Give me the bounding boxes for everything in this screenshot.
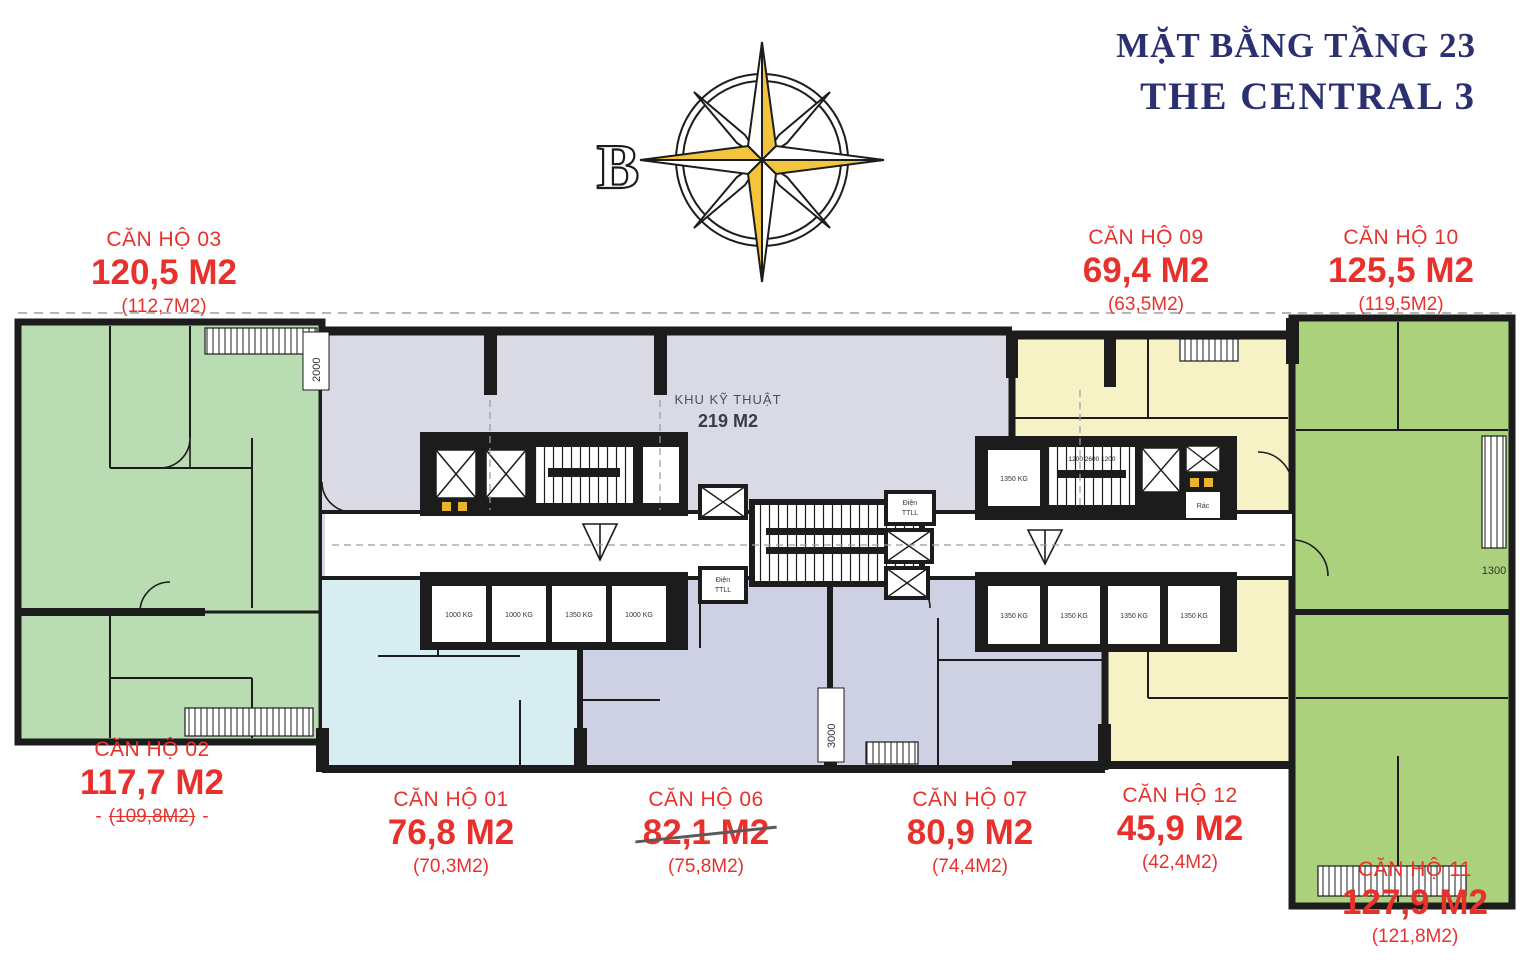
apartment-label-07: CĂN HỘ 07 80,9 M2 (74,4M2) — [864, 788, 1076, 878]
apartment-label-01: CĂN HỘ 01 76,8 M2 (70,3M2) — [345, 788, 557, 878]
stair-dimension: 1200 2600 1200 — [1069, 456, 1116, 463]
apartment-label-03: CĂN HỘ 03 120,5 M2 (112,7M2) — [58, 228, 270, 318]
trash-room-label: Rác — [1197, 503, 1210, 510]
lift-label: 1350 KG — [1000, 476, 1028, 483]
apartment-area-old: (112,7M2) — [58, 296, 270, 318]
apartment-area-old-value: (109,8M2) — [109, 806, 196, 827]
dimension-1300: 1300 — [1482, 565, 1506, 577]
compass-rose: B — [597, 42, 884, 282]
apartment-label-12: CĂN HỘ 12 45,9 M2 (42,4M2) — [1074, 784, 1286, 874]
stairs-right: 1200 2600 1200 — [1048, 446, 1136, 506]
apartment-area: 45,9 M2 — [1074, 809, 1286, 849]
lift-label: 1000 KG — [625, 612, 653, 619]
elec-room-label: Điện — [716, 577, 731, 584]
apartment-area-old: (75,8M2) — [600, 856, 812, 878]
apartment-area: 69,4 M2 — [1040, 251, 1252, 291]
elec-room-label: Điện — [903, 500, 918, 507]
indicator-light — [1204, 478, 1213, 487]
apartment-label-10: CĂN HỘ 10 125,5 M2 (119,5M2) — [1290, 226, 1512, 316]
apartment-label-11: CĂN HỘ 11 127,9 M2 (121,8M2) — [1308, 858, 1522, 948]
lift-label: 1350 KG — [565, 612, 593, 619]
elec-room-right: Điện TTLL — [886, 492, 934, 524]
dimension-3000: 3000 — [826, 724, 838, 748]
apartment-name: CĂN HỘ 02 — [44, 738, 260, 762]
apartment-name: CĂN HỘ 01 — [345, 788, 557, 812]
apartment-name: CĂN HỘ 03 — [58, 228, 270, 252]
apartment-name: CĂN HỘ 11 — [1308, 858, 1522, 882]
floorplan-page: B — [0, 0, 1536, 962]
apartment-name: CĂN HỘ 12 — [1074, 784, 1286, 808]
apartment-area: 125,5 M2 — [1290, 251, 1512, 291]
apartment-area: 120,5 M2 — [58, 253, 270, 293]
title-line-floor: MẶT BẰNG TẦNG 23 — [1116, 26, 1476, 66]
apartment-label-09: CĂN HỘ 09 69,4 M2 (63,5M2) — [1040, 226, 1252, 316]
lift-label: 1000 KG — [445, 612, 473, 619]
apartment-area: 80,9 M2 — [864, 813, 1076, 853]
apartment-name: CĂN HỘ 10 — [1290, 226, 1512, 250]
indicator-light — [442, 502, 451, 511]
strike-dash: - — [195, 806, 215, 827]
apartment-area: 117,7 M2 — [44, 763, 260, 803]
drawing-title: MẶT BẰNG TẦNG 23 THE CENTRAL 3 — [1116, 26, 1476, 119]
stairs-left — [534, 446, 634, 504]
lift-label: 1350 KG — [1060, 613, 1088, 620]
apartment-area-old: (74,4M2) — [864, 856, 1076, 878]
lift-label: 1350 KG — [1120, 613, 1148, 620]
lift-label: 1350 KG — [1000, 613, 1028, 620]
apartment-name: CĂN HỘ 06 — [600, 788, 812, 812]
elec-room-label: TTLL — [902, 510, 918, 517]
dimension-2000: 2000 — [311, 358, 323, 382]
apartment-label-02: CĂN HỘ 02 117,7 M2 -(109,8M2)- — [44, 738, 260, 828]
apartment-label-06: CĂN HỘ 06 82,1 M2 (75,8M2) — [600, 788, 812, 878]
apartment-area-old: -(109,8M2)- — [44, 806, 260, 828]
apartment-area-old: (121,8M2) — [1308, 926, 1522, 948]
compass-cardinal-points — [640, 42, 884, 282]
lift-label: 1000 KG — [505, 612, 533, 619]
title-line-project: THE CENTRAL 3 — [1116, 74, 1476, 119]
elec-room-label: TTLL — [715, 587, 731, 594]
apartment-area-old: (70,3M2) — [345, 856, 557, 878]
technical-room-area: 219 M2 — [698, 411, 758, 431]
apartment-area-old: (42,4M2) — [1074, 852, 1286, 874]
indicator-light — [1190, 478, 1199, 487]
indicator-light — [458, 502, 467, 511]
strike-dash: - — [88, 806, 108, 827]
lift-label: 1350 KG — [1180, 613, 1208, 620]
elec-room-left: Điện TTLL — [700, 568, 746, 602]
technical-room-name: KHU KỸ THUẬT — [674, 392, 781, 407]
apartment-area: 76,8 M2 — [345, 813, 557, 853]
apartment-area: 127,9 M2 — [1308, 883, 1522, 923]
apartment-area-old: (63,5M2) — [1040, 294, 1252, 316]
apartment-area-old: (119,5M2) — [1290, 294, 1512, 316]
compass-north-label: B — [597, 131, 640, 202]
apartment-name: CĂN HỘ 09 — [1040, 226, 1252, 250]
apartment-area-struck: 82,1 M2 — [643, 813, 769, 853]
apartment-name: CĂN HỘ 07 — [864, 788, 1076, 812]
core-room — [642, 446, 680, 504]
